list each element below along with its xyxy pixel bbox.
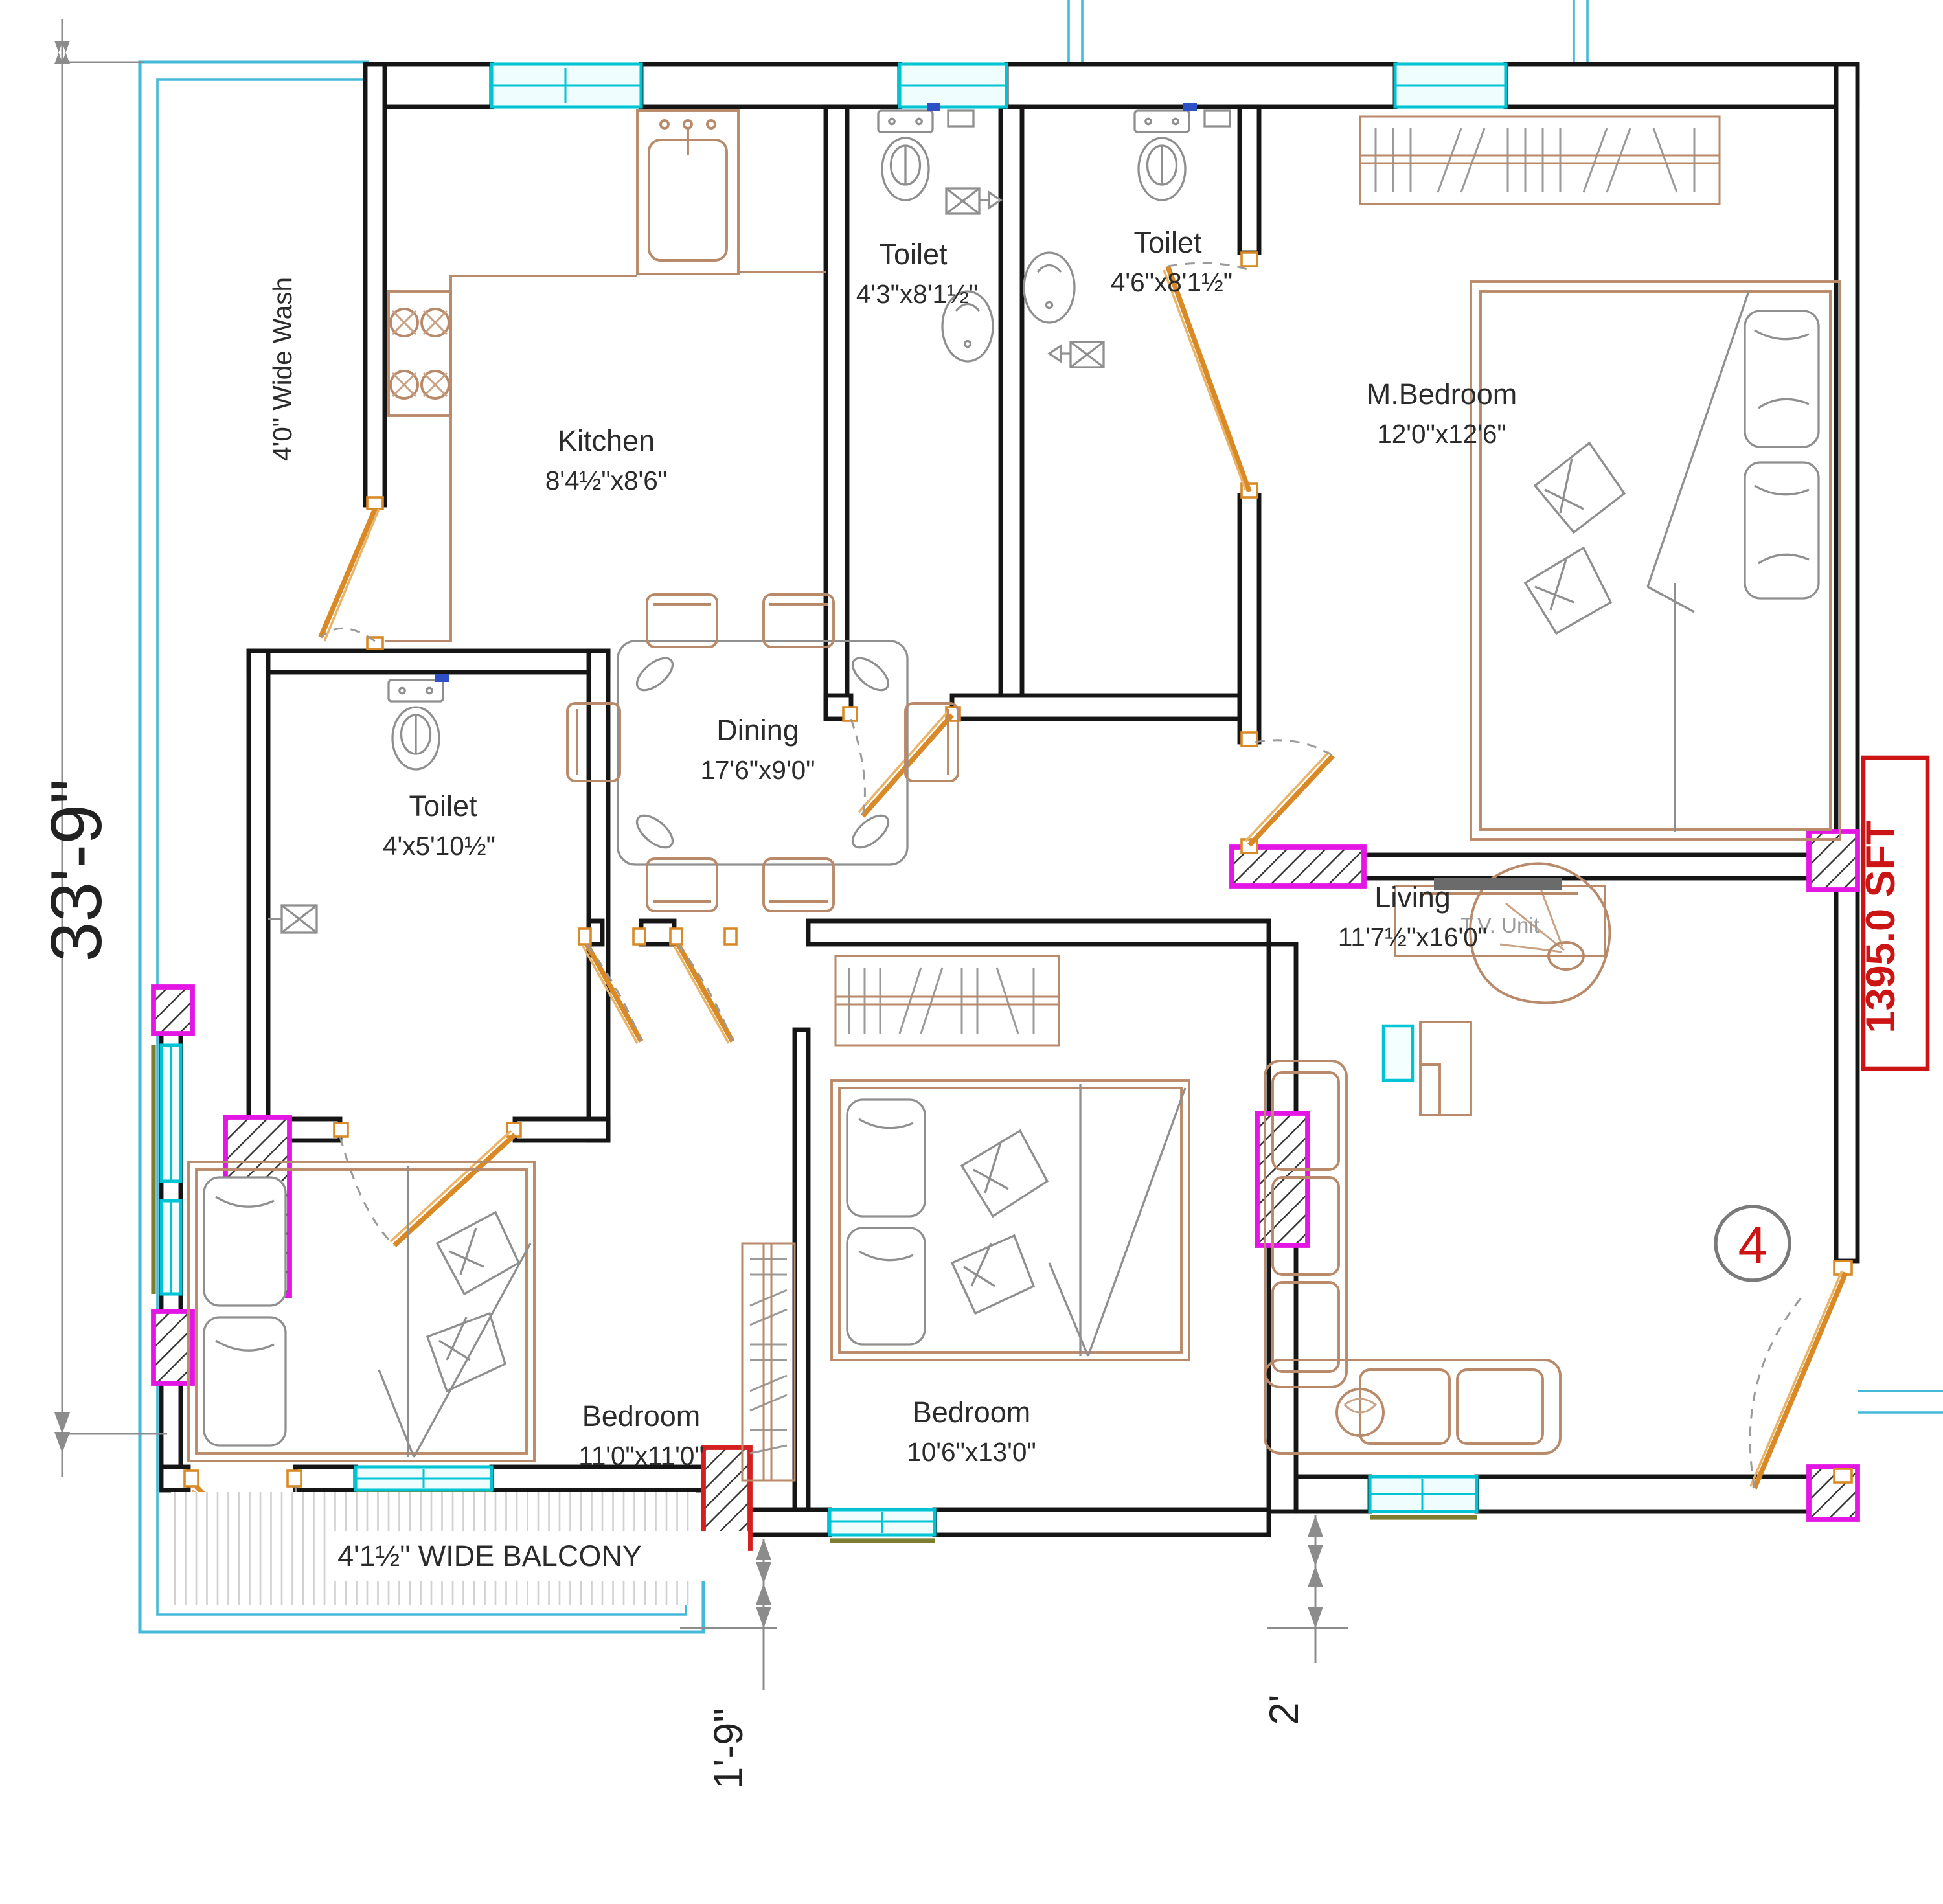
floor-plan-drawing: 4'1½" WIDE BALCONY	[0, 0, 1943, 1904]
toilet3-size: 4'x5'10½"	[383, 831, 495, 861]
dim-bottom-right-text: 2'	[1262, 1694, 1307, 1725]
dining-size: 17'6"x9'0"	[700, 755, 815, 785]
faucet-icon	[1183, 103, 1197, 111]
floor-plan-page: 4'1½" WIDE BALCONY	[0, 0, 1943, 1904]
toilet1-window	[900, 64, 1006, 107]
toilet2-size: 4'6"x8'1½"	[1111, 267, 1233, 297]
toilet1-fixtures	[878, 103, 1001, 361]
sink-icon	[637, 111, 738, 274]
mbed-wardrobe	[1360, 117, 1720, 204]
toilet1-size: 4'3"x8'1½"	[856, 279, 978, 309]
wash-label: 4'0" Wide Wash	[267, 277, 297, 461]
pillow-cushions	[1525, 443, 1624, 633]
faucet-icon	[435, 674, 449, 682]
dining-table	[567, 595, 958, 911]
pillow-cushions	[427, 1212, 519, 1391]
toilet2-label: Toilet	[1133, 226, 1202, 259]
mbedroom-size: 12'0"x12'6"	[1377, 419, 1506, 449]
toilet3-label: Toilet	[409, 789, 477, 822]
kitchen-label: Kitchen	[558, 424, 655, 457]
living-bottom-window	[1370, 1477, 1477, 1517]
master-bed	[1471, 282, 1840, 839]
column-bed1-bottom	[153, 1311, 192, 1383]
bedroom2-bottom-window	[830, 1510, 935, 1541]
balcony: 4'1½" WIDE BALCONY	[171, 1492, 748, 1605]
balcony-label: 4'1½" WIDE BALCONY	[337, 1539, 642, 1572]
dining-label: Dining	[716, 714, 799, 747]
area-badge: 1395.0 SFT	[1858, 758, 1927, 1069]
toilet1-label: Toilet	[879, 238, 948, 271]
column-bed1-top	[153, 987, 192, 1034]
bedroom2-wardrobe	[835, 956, 1059, 1045]
bedroom2-bed	[832, 1080, 1189, 1360]
unit-number-text: 4	[1738, 1216, 1767, 1275]
dimension-left: 33'-9"	[36, 19, 167, 1477]
kitchen-size: 8'4½"x8'6"	[545, 466, 667, 495]
stove-icon	[389, 291, 451, 416]
pillow-cushions	[952, 1131, 1047, 1313]
bedroom1-label: Bedroom	[582, 1400, 701, 1433]
dim-left-text: 33'-9"	[36, 779, 117, 962]
bedroom2-label: Bedroom	[913, 1396, 1031, 1429]
bedroom1-size: 11'0"x11'0"	[578, 1441, 704, 1471]
living-size: 11'7½"x16'0"	[1338, 922, 1487, 952]
bedroom1-bottom-window	[356, 1467, 492, 1494]
toilet2-window	[1395, 64, 1506, 107]
area-text: 1395.0 SFT	[1858, 820, 1903, 1033]
coffee-tables	[1383, 1022, 1471, 1115]
bedroom1-bed	[188, 1162, 534, 1461]
unit-number-badge: 4	[1716, 1207, 1790, 1280]
bedroom2-size: 10'6"x13'0"	[907, 1437, 1036, 1467]
dimension-bottom-right: 2'	[1262, 1515, 1348, 1725]
dim-bottom-left-text: 1'-9"	[706, 1708, 751, 1789]
faucet-icon	[927, 103, 940, 111]
kitchen-fixtures	[385, 111, 826, 641]
mbedroom-label: M.Bedroom	[1367, 378, 1517, 411]
living-label: Living	[1374, 881, 1451, 914]
kitchen-window	[492, 64, 641, 107]
